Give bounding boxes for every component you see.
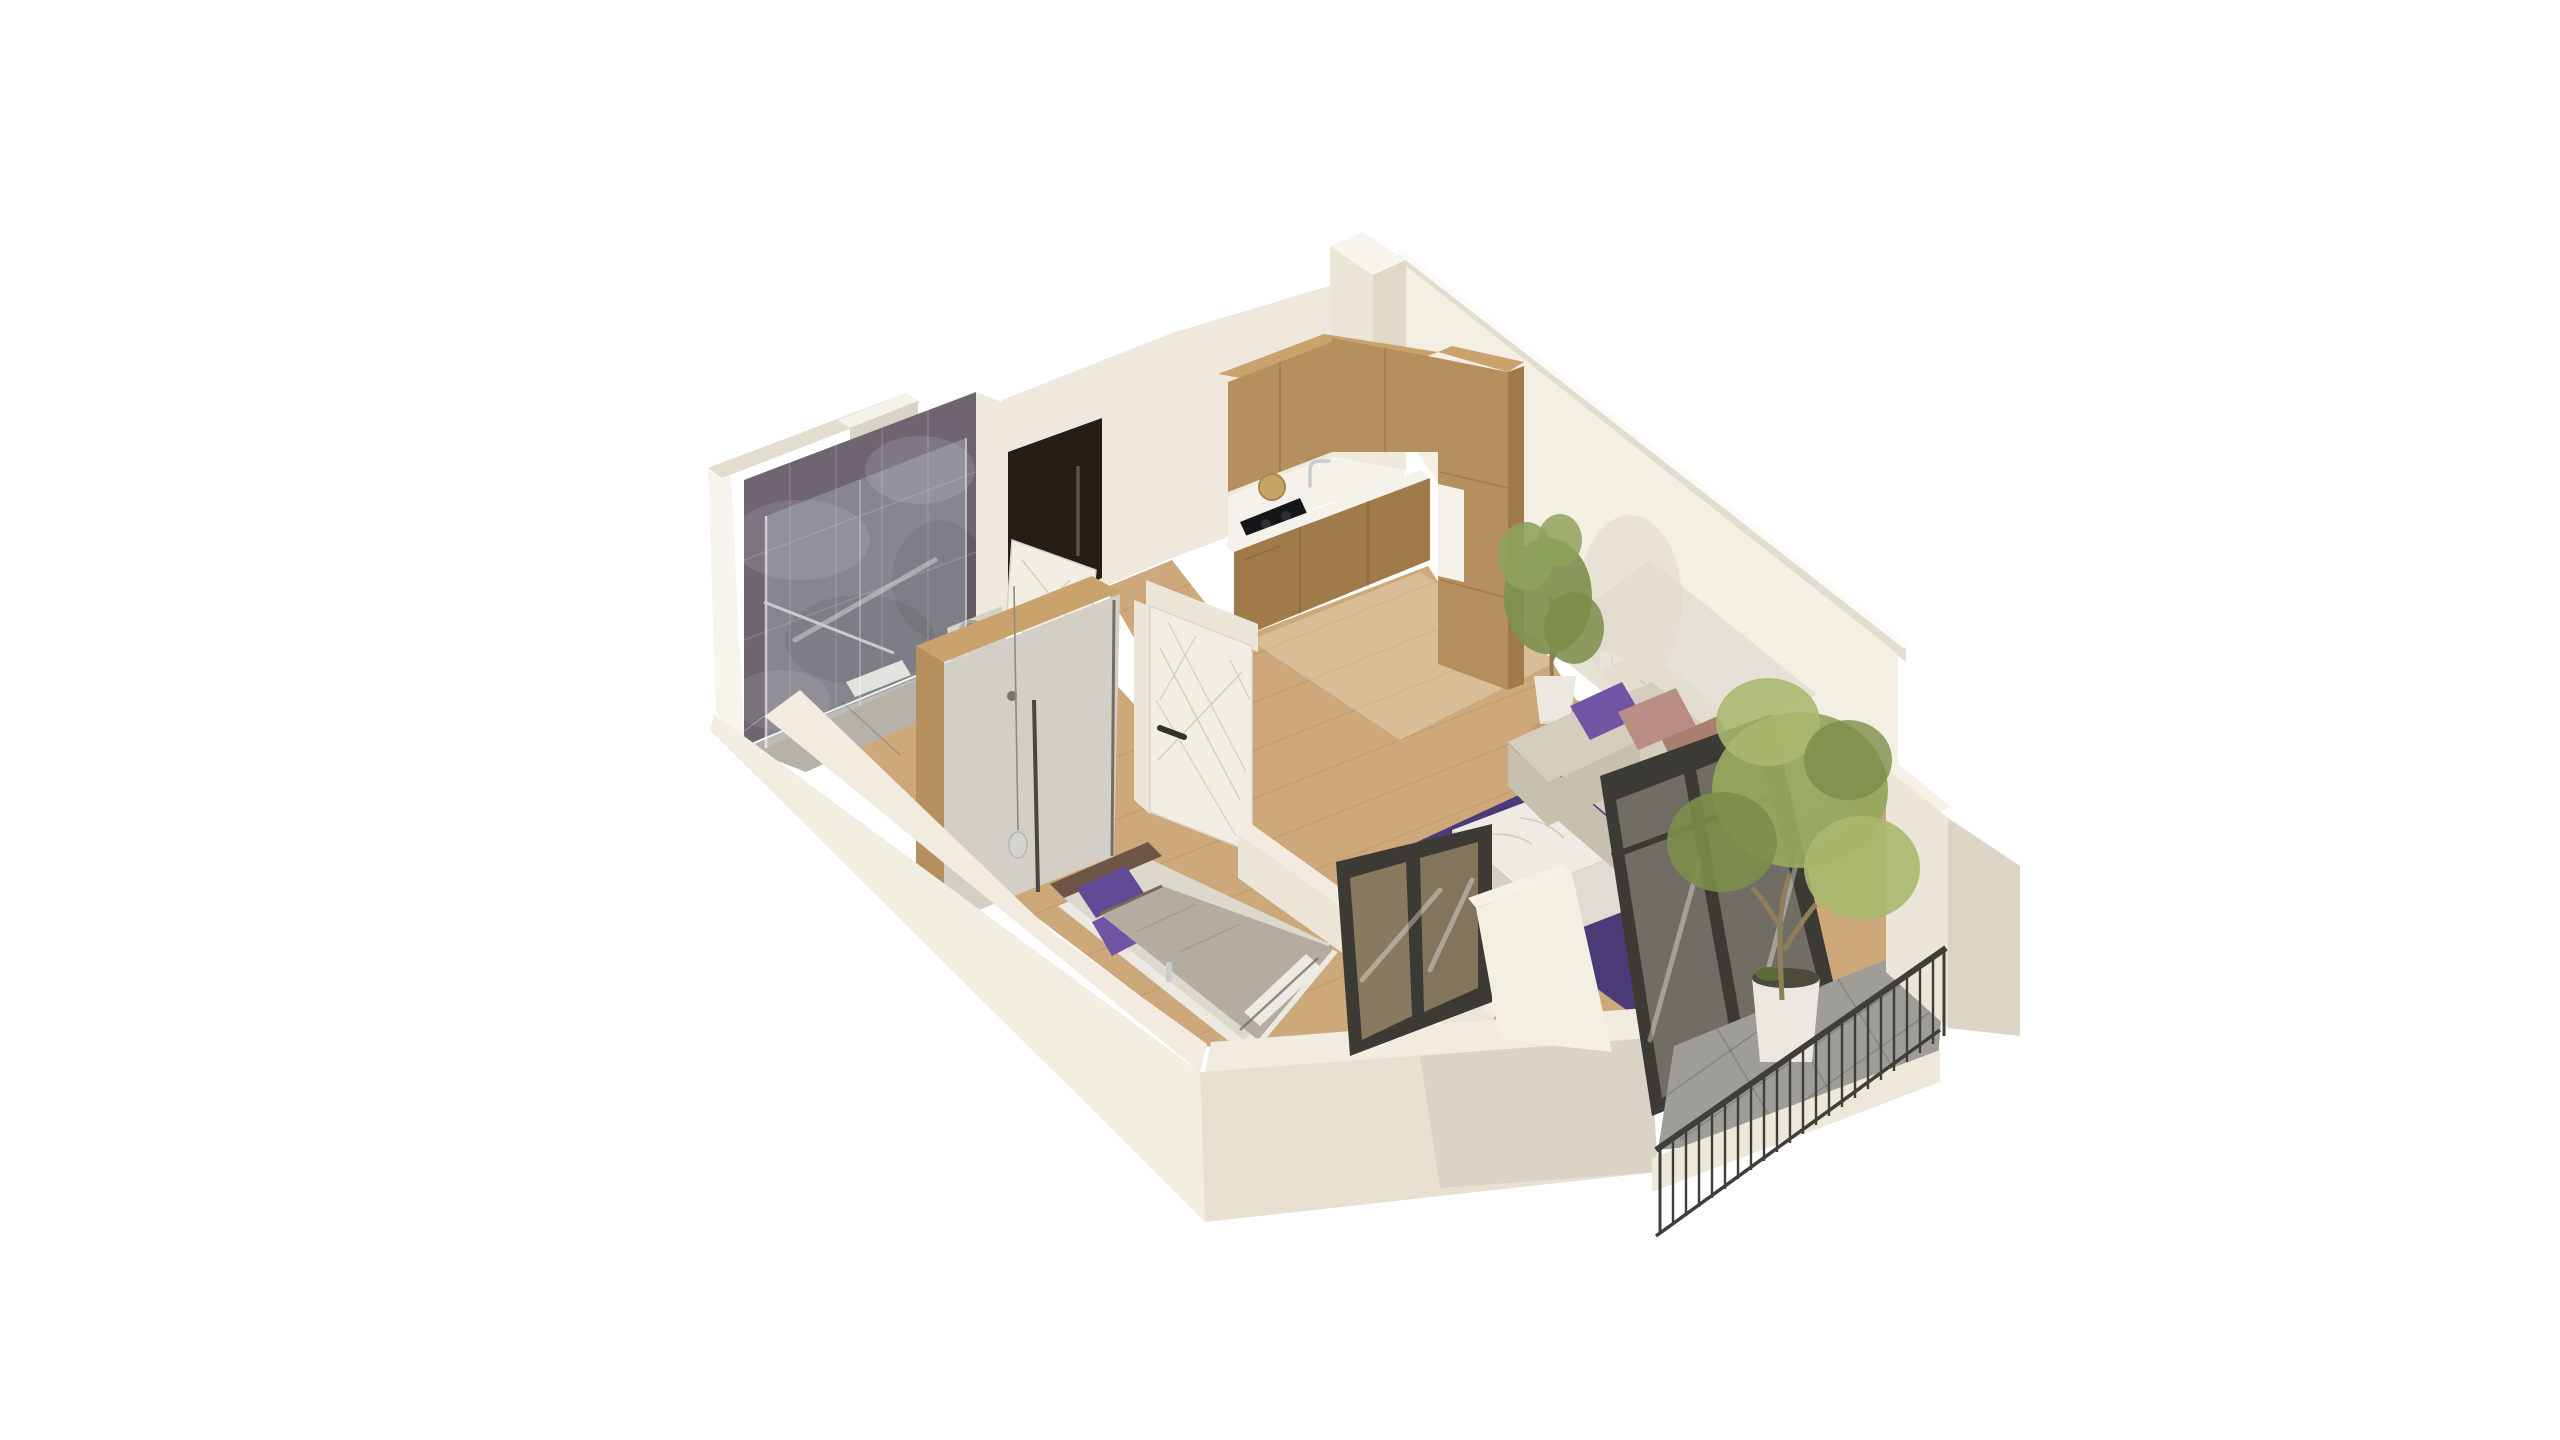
- round-cutting-board: [1259, 474, 1285, 500]
- tall-cabinet-column: [1438, 346, 1524, 690]
- left-wall-outer-edge: [708, 458, 744, 738]
- bedroom-door-assembly: [1134, 580, 1258, 852]
- bedside-lamp: [1166, 962, 1172, 982]
- tall-cabinet-counter-niche: [1438, 484, 1464, 582]
- door-frame-left: [1134, 600, 1150, 814]
- parapet-right-face: [1948, 818, 2020, 1036]
- bedroom-door: [1150, 606, 1252, 852]
- isometric-apartment-svg: [0, 0, 2560, 1440]
- apartment-render-canvas: [0, 0, 2560, 1440]
- tree-pot: [1752, 978, 1820, 1062]
